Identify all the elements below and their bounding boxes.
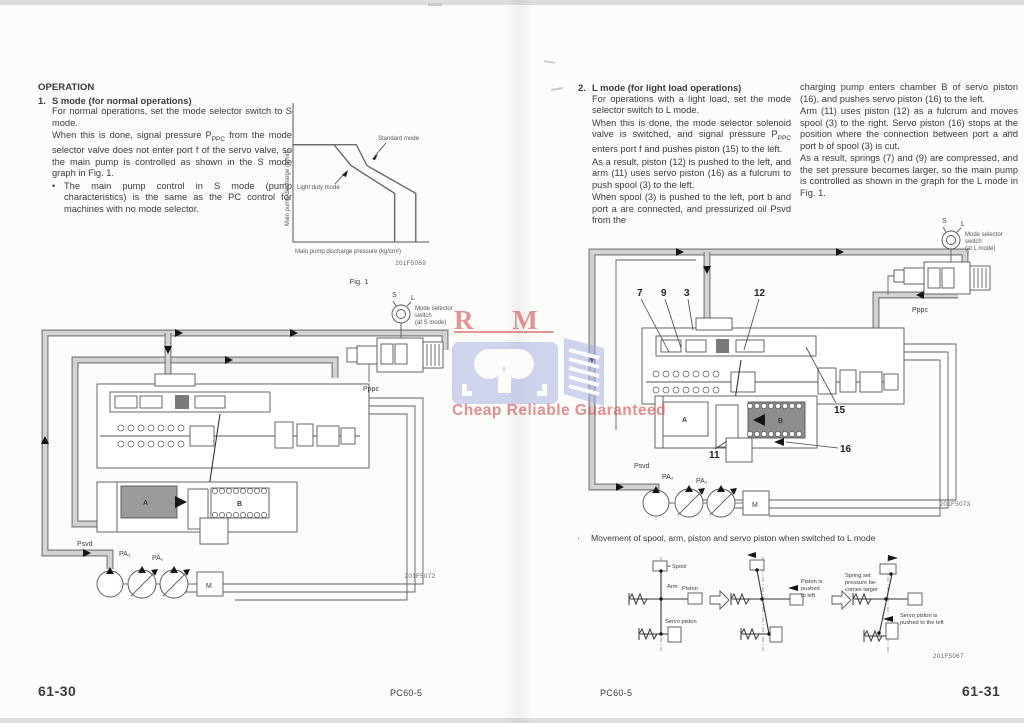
movement-figure-id: 201F5067: [933, 653, 964, 660]
bullet-marker: •: [52, 181, 64, 216]
footer-right-model: PC60-5: [600, 688, 632, 698]
joint-dot: [659, 632, 662, 635]
l-mode-col2-paragraph-2: Arm (11) uses piston (12) as a fulcrum a…: [800, 106, 1018, 152]
psvd-label: Psvd: [77, 541, 93, 548]
valve-inlet-block: [696, 318, 732, 330]
y-axis-label: Main pump discharge (ℓ/min): [284, 150, 291, 226]
s-mode-bullet-text: The main pump control in S mode (pump ch…: [64, 181, 292, 216]
valve-connector: [894, 270, 904, 282]
spool-box: [880, 564, 896, 574]
switch-l-label: L: [411, 295, 415, 302]
s-mode-title: 1. S mode (for normal operations): [38, 95, 292, 107]
charging-pump-icon: [97, 571, 123, 597]
spring-note-3: comes larger: [845, 587, 878, 593]
standard-mode-arrow: [374, 143, 386, 157]
s-mode-paragraph-1: For normal operations, set the mode sele…: [52, 106, 292, 129]
l-mode-paragraph-3: As a result, piston (12) is pushed to th…: [592, 157, 791, 192]
l-mode-text-block-2: charging pump enters chamber B of servo …: [800, 82, 1018, 200]
joint-dot: [755, 568, 758, 571]
l-mode-col2-paragraph-3: As a result, springs (7) and (9) are com…: [800, 153, 1018, 199]
movement-bullet-marker: ·: [577, 533, 591, 543]
l-mode-paragraph-2: When this is done, the mode selector sol…: [592, 118, 791, 156]
cylinder-stem: [726, 438, 752, 462]
spool-dark-land: [716, 339, 729, 353]
callout-11: 11: [709, 450, 720, 461]
chamber-a-label: A: [143, 500, 148, 507]
solenoid-coil: [970, 266, 990, 290]
piston-block: [840, 370, 856, 392]
footer-right-page-number: 61-31: [962, 683, 1000, 699]
s-mode-number: 1.: [38, 95, 52, 107]
joint-dot: [760, 597, 763, 600]
page-fold-shadow: [505, 0, 533, 723]
x-axis-label: Main pump discharge pressure (kg/cm²): [295, 249, 401, 255]
pump-inlet-arrow: [685, 485, 693, 492]
callout-16: 16: [840, 444, 852, 455]
mode-selector-caption-3: (at L mode): [965, 246, 995, 252]
joint-dot: [889, 572, 892, 575]
piston-box: [908, 593, 922, 605]
movement-title-row: · Movement of spool, arm, piston and ser…: [577, 533, 1017, 543]
piston-block: [317, 426, 339, 446]
piston-note-1: Piston is: [801, 579, 823, 585]
mode-selector-knob-icon: [392, 305, 410, 323]
joint-dot: [659, 569, 662, 572]
s-mode-hydraulic-diagram: A B Psvd PA₂ PA₁ M S L M: [25, 286, 475, 616]
piston-label: Piston: [682, 586, 698, 592]
joint-dot: [884, 597, 887, 600]
l-mode-number: 2.: [578, 82, 592, 94]
servo-note-1: Servo piston is: [900, 613, 937, 619]
main-pump-icon: [128, 570, 156, 598]
valve-inlet-block: [155, 374, 195, 386]
servo-piston-box: [668, 627, 681, 642]
spool-label: Spool: [672, 564, 687, 570]
mode-selector-caption-2: switch: [965, 239, 982, 245]
solenoid-coil: [423, 342, 443, 368]
l-mode-title-text: L mode (for light load operations): [592, 82, 741, 94]
pa2-label: PA₂: [662, 474, 674, 481]
scan-speck: [551, 87, 563, 91]
pa2-label: PA₂: [119, 551, 131, 558]
servo-piston-label: Servo piston: [665, 619, 697, 625]
piston-block: [884, 374, 898, 390]
fig1-graph: Standard mode Light duty mode Main pump …: [283, 88, 468, 288]
fig1-figure-id: 201F5069: [395, 260, 426, 267]
mode-selector-caption-1: Mode selector: [965, 232, 1003, 238]
solenoid-port: [381, 344, 393, 364]
psvd-label: Psvd: [634, 463, 650, 470]
footer-left-page-number: 61-30: [38, 683, 76, 699]
footer-left-model: PC60-5: [390, 688, 422, 698]
piston-block: [297, 424, 313, 446]
manual-spread: OPERATION 1. S mode (for normal operatio…: [0, 0, 1024, 723]
callout-3: 3: [684, 288, 690, 299]
right-diagram-figure-id: 201F5073: [940, 501, 971, 508]
callout-15: 15: [834, 405, 846, 416]
movement-title: Movement of spool, arm, piston and servo…: [591, 533, 875, 543]
scan-speck: [544, 60, 555, 64]
charging-pump-icon: [643, 490, 669, 516]
l-mode-col2-paragraph-1: charging pump enters chamber B of servo …: [800, 82, 1018, 105]
main-pump-icon: [160, 570, 188, 598]
push-left-arrow: [747, 552, 756, 558]
s-mode-bullet: • The main pump control in S mode (pump …: [52, 181, 292, 216]
cylinder-stem: [200, 518, 228, 544]
pppc-label: Pppc: [363, 386, 379, 393]
spring-note-1: Spring set: [845, 573, 871, 579]
valve-connector: [904, 268, 924, 284]
pump-inlet-arrow: [170, 566, 178, 573]
left-diagram-figure-id: 201F5072: [405, 573, 436, 580]
s-mode-title-text: S mode (for normal operations): [52, 95, 192, 107]
callout-leader: [688, 299, 693, 330]
solenoid-port: [942, 268, 954, 288]
mode-selector-caption-2: switch: [415, 313, 432, 319]
pump-inlet-arrow: [717, 485, 725, 492]
switch-s-label: S: [392, 292, 397, 299]
solenoid-port: [395, 344, 407, 364]
piston-block: [818, 368, 836, 394]
solenoid-port: [928, 268, 940, 288]
movement-diagram: Spool Arm Piston Servo piston Piston is …: [570, 547, 1024, 672]
switch-tick-s: [393, 301, 396, 306]
switch-s-label: S: [942, 218, 947, 225]
spool-land: [115, 396, 137, 408]
pppc-label: Pppc: [912, 307, 928, 314]
push-right-arrow: [888, 555, 898, 561]
callout-7: 7: [637, 288, 643, 299]
l-mode-paragraph-1: For operations with a light load, set th…: [592, 94, 791, 117]
chamber-b-label: B: [778, 418, 783, 425]
spool-collar: [190, 426, 214, 446]
servo-piston-box: [886, 623, 898, 639]
scan-speck: [428, 3, 442, 6]
mode-selector-caption-3: (at S mode): [415, 320, 446, 326]
servo-piston-box: [770, 627, 782, 642]
arm-label: Arm: [667, 584, 678, 590]
callout-12: 12: [754, 288, 766, 299]
joint-dot: [767, 632, 770, 635]
main-pump-icon: [675, 489, 703, 517]
spool-box: [653, 561, 667, 571]
switch-tick-s: [943, 227, 946, 232]
joint-dot: [877, 631, 880, 634]
switch-tick-l: [957, 228, 961, 232]
piston-box: [688, 593, 702, 604]
chamber-a: [121, 486, 177, 518]
switch-l-label: L: [961, 221, 965, 228]
solenoid-pipe: [369, 364, 377, 382]
fig1-caption: Fig. 1: [350, 277, 369, 286]
step-arrow-icon: [710, 591, 729, 609]
piston-note-2: pushed: [801, 586, 820, 592]
l-mode-hydraulic-diagram: A B 7 9 3 12 15 11 16 Psvd PA₂ PA₁: [556, 200, 1024, 530]
piston-block: [341, 428, 355, 444]
spool-collar: [731, 372, 755, 392]
operation-heading: OPERATION: [38, 82, 292, 94]
joint-dot: [659, 597, 662, 600]
step-arrow-icon: [832, 591, 851, 609]
pa1-label: PA₁: [696, 478, 708, 485]
pa1-label: PA₁: [152, 555, 164, 562]
pump-inlet-arrow: [138, 566, 146, 573]
light-duty-mode-curve: [293, 145, 395, 242]
main-pump-icon: [707, 489, 735, 517]
servo-note-2: pushed to the left: [900, 620, 944, 626]
motor-label: M: [752, 502, 758, 509]
motor-label: M: [206, 583, 212, 590]
mode-selector-caption-1: Mode selector: [415, 306, 453, 312]
light-duty-mode-label: Light duty mode: [297, 185, 340, 191]
valve-connector: [357, 346, 377, 364]
piston-note-3: to left: [801, 593, 815, 599]
spool-land: [686, 340, 706, 352]
standard-mode-label: Standard mode: [378, 136, 420, 142]
standard-mode-arrowhead: [372, 154, 378, 160]
mode-selector-knob-icon: [942, 231, 960, 249]
push-left-arrow: [788, 585, 798, 591]
chamber-a-label: A: [682, 417, 687, 424]
callout-9: 9: [661, 288, 667, 299]
switch-tick-l: [407, 302, 411, 306]
piston-block: [275, 422, 293, 448]
valve-connector: [347, 348, 357, 362]
standard-mode-curve: [293, 145, 416, 242]
l-mode-title: 2. L mode (for light load operations): [578, 82, 791, 94]
chamber-b-label: B: [237, 501, 242, 508]
spool-land: [736, 340, 764, 352]
spool-dark-land: [175, 395, 189, 409]
s-mode-paragraph-2: When this is done, signal pressure PPPC …: [52, 130, 292, 180]
s-mode-text-block: OPERATION 1. S mode (for normal operatio…: [38, 82, 292, 215]
piston-block: [860, 372, 882, 392]
spring-note-2: pressure be-: [845, 580, 877, 586]
spool-land: [140, 396, 162, 408]
spool-land: [195, 396, 225, 408]
